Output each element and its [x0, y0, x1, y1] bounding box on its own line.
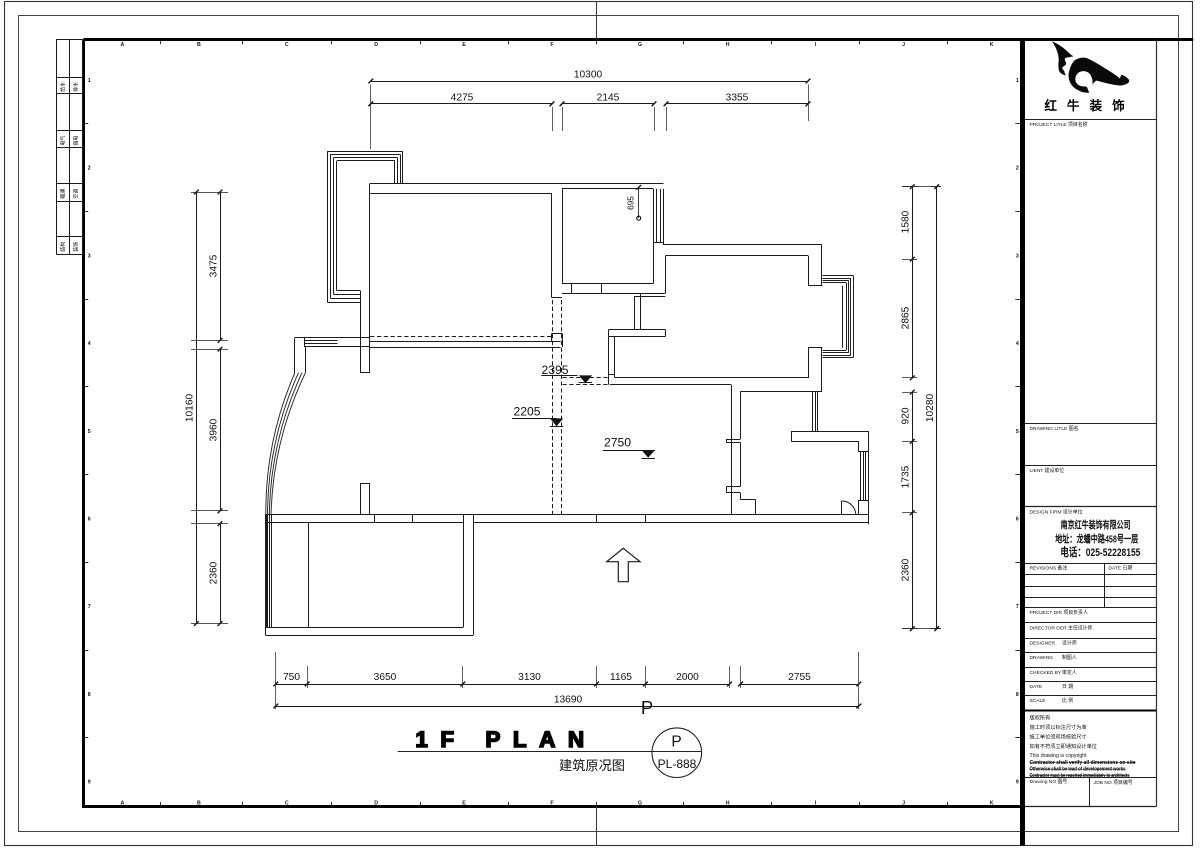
svg-text:7: 7	[88, 604, 91, 610]
svg-text:This drawing is copyright: This drawing is copyright	[1030, 753, 1088, 759]
svg-text:LIENT 建设单位: LIENT 建设单位	[1030, 467, 1065, 474]
svg-text:REVISIONS 备注: REVISIONS 备注	[1030, 565, 1068, 572]
svg-text:K: K	[990, 800, 994, 806]
svg-text:J: J	[902, 800, 905, 806]
svg-text:PL-888: PL-888	[658, 757, 697, 771]
svg-text:F: F	[550, 42, 553, 48]
svg-text:E: E	[462, 42, 466, 48]
svg-text:6: 6	[88, 517, 91, 523]
svg-text:C: C	[285, 800, 289, 806]
svg-text:9: 9	[1016, 780, 1019, 786]
svg-text:J: J	[902, 42, 905, 48]
svg-text:4: 4	[1016, 341, 1019, 347]
svg-text:PROJECT LITLE 项目名称: PROJECT LITLE 项目名称	[1030, 121, 1088, 128]
svg-text:SCALE: SCALE	[1030, 698, 1047, 704]
svg-text:2750: 2750	[604, 436, 631, 450]
svg-text:3: 3	[88, 253, 91, 259]
svg-text:1F PLAN: 1F PLAN	[415, 727, 596, 752]
svg-text:A: A	[121, 42, 125, 48]
svg-text:Otherwise shall be lead of dev: Otherwise shall be lead of developement …	[1030, 767, 1126, 773]
svg-text:排水: 排水	[73, 82, 80, 92]
svg-text:10160: 10160	[185, 394, 196, 423]
svg-text:D: D	[374, 800, 378, 806]
svg-text:5: 5	[88, 429, 91, 435]
svg-text:2205: 2205	[513, 405, 540, 419]
svg-text:A: A	[121, 800, 125, 806]
svg-text:1: 1	[88, 78, 91, 84]
svg-text:2: 2	[1016, 166, 1019, 172]
svg-text:2000: 2000	[676, 672, 699, 683]
svg-text:3130: 3130	[518, 672, 541, 683]
svg-text:建筑原况图: 建筑原况图	[559, 758, 625, 773]
svg-text:P: P	[671, 733, 681, 750]
svg-text:C: C	[285, 42, 289, 48]
svg-text:4275: 4275	[451, 92, 474, 103]
svg-text:H: H	[726, 42, 730, 48]
svg-text:如有不符须立即通知设计单位: 如有不符须立即通知设计单位	[1030, 742, 1097, 750]
svg-text:2360: 2360	[901, 558, 912, 581]
svg-text:设计师: 设计师	[1062, 640, 1077, 647]
svg-text:给水: 给水	[59, 82, 66, 92]
svg-text:3355: 3355	[726, 92, 749, 103]
svg-text:E: E	[462, 800, 466, 806]
svg-text:日 期: 日 期	[1062, 684, 1073, 690]
svg-text:2865: 2865	[901, 306, 912, 329]
svg-text:比 例: 比 例	[1062, 697, 1073, 704]
svg-text:D: D	[374, 42, 378, 48]
svg-text:DATE 日期: DATE 日期	[1109, 566, 1133, 572]
svg-text:5: 5	[1016, 429, 1019, 435]
svg-text:8: 8	[1016, 692, 1019, 698]
svg-text:695: 695	[627, 196, 636, 210]
svg-text:B: B	[197, 800, 201, 806]
svg-text:装饰: 装饰	[73, 242, 80, 252]
svg-text:1580: 1580	[901, 210, 912, 233]
svg-text:电气: 电气	[59, 136, 66, 146]
svg-text:10300: 10300	[574, 70, 603, 81]
svg-text:2145: 2145	[597, 92, 620, 103]
svg-text:6: 6	[1016, 517, 1019, 523]
svg-text:红牛装饰: 红牛装饰	[1044, 98, 1134, 113]
svg-text:10280: 10280	[925, 394, 936, 423]
svg-text:PROJECT DIR 项目负责人: PROJECT DIR 项目负责人	[1030, 609, 1088, 616]
svg-text:1: 1	[1016, 78, 1019, 84]
svg-text:4: 4	[88, 341, 91, 347]
svg-text:CHECKED BY: CHECKED BY	[1030, 670, 1063, 676]
svg-text:Drawing NO 图号: Drawing NO 图号	[1030, 779, 1068, 785]
svg-text:2755: 2755	[788, 672, 811, 683]
svg-text:地址：龙蟠中路458号一层: 地址：龙蟠中路458号一层	[1055, 533, 1138, 546]
svg-text:电话：025-52228155: 电话：025-52228155	[1060, 545, 1140, 559]
svg-text:H: H	[726, 800, 730, 806]
svg-text:南京红牛装饰有限公司: 南京红牛装饰有限公司	[1061, 519, 1131, 532]
svg-text:8: 8	[88, 692, 91, 698]
svg-text:K: K	[990, 42, 994, 48]
svg-text:Contractor must be reported im: Contractor must be reported immediately …	[1030, 773, 1130, 779]
svg-text:暖通: 暖通	[59, 189, 66, 199]
svg-text:制图人: 制图人	[1062, 654, 1077, 661]
svg-text:F: F	[550, 800, 553, 806]
svg-text:2: 2	[88, 166, 91, 172]
svg-text:1735: 1735	[901, 465, 912, 488]
svg-text:3: 3	[1016, 253, 1019, 259]
svg-text:施工时须以标注尺寸为准: 施工时须以标注尺寸为准	[1030, 723, 1087, 731]
svg-text:750: 750	[283, 672, 300, 683]
svg-text:DESIGNER: DESIGNER	[1030, 641, 1056, 647]
svg-text:空调: 空调	[73, 189, 80, 199]
svg-text:P: P	[641, 697, 653, 718]
svg-text:3650: 3650	[374, 672, 397, 683]
svg-text:审定人: 审定人	[1062, 669, 1077, 676]
svg-text:920: 920	[901, 407, 912, 424]
svg-text:B: B	[197, 42, 201, 48]
svg-text:2360: 2360	[208, 561, 219, 584]
svg-text:JOB NO 项目编号: JOB NO 项目编号	[1094, 779, 1133, 786]
svg-text:Contractor shall verify all di: Contractor shall verify all dimensions o…	[1030, 760, 1136, 766]
svg-text:DATE: DATE	[1030, 684, 1043, 690]
svg-text:3475: 3475	[208, 254, 219, 277]
svg-text:G: G	[638, 42, 642, 48]
svg-text:施工单位须现场核验尺寸: 施工单位须现场核验尺寸	[1030, 733, 1087, 741]
svg-text:3960: 3960	[208, 418, 219, 441]
svg-text:G: G	[638, 800, 642, 806]
svg-text:DESIGN FIRM 设计单位: DESIGN FIRM 设计单位	[1030, 509, 1083, 516]
svg-text:13690: 13690	[554, 694, 583, 705]
svg-text:弱电: 弱电	[73, 136, 80, 146]
svg-text:DRAWING LITLE 图名: DRAWING LITLE 图名	[1030, 425, 1079, 432]
svg-text:DIRECTOR DER 主任设计师: DIRECTOR DER 主任设计师	[1030, 624, 1093, 631]
svg-text:9: 9	[88, 780, 91, 786]
svg-text:1165: 1165	[610, 672, 632, 683]
svg-text:DRAWING: DRAWING	[1030, 655, 1054, 661]
svg-text:版权所有: 版权所有	[1030, 714, 1051, 722]
svg-text:结构: 结构	[59, 242, 66, 252]
svg-text:7: 7	[1016, 604, 1019, 610]
